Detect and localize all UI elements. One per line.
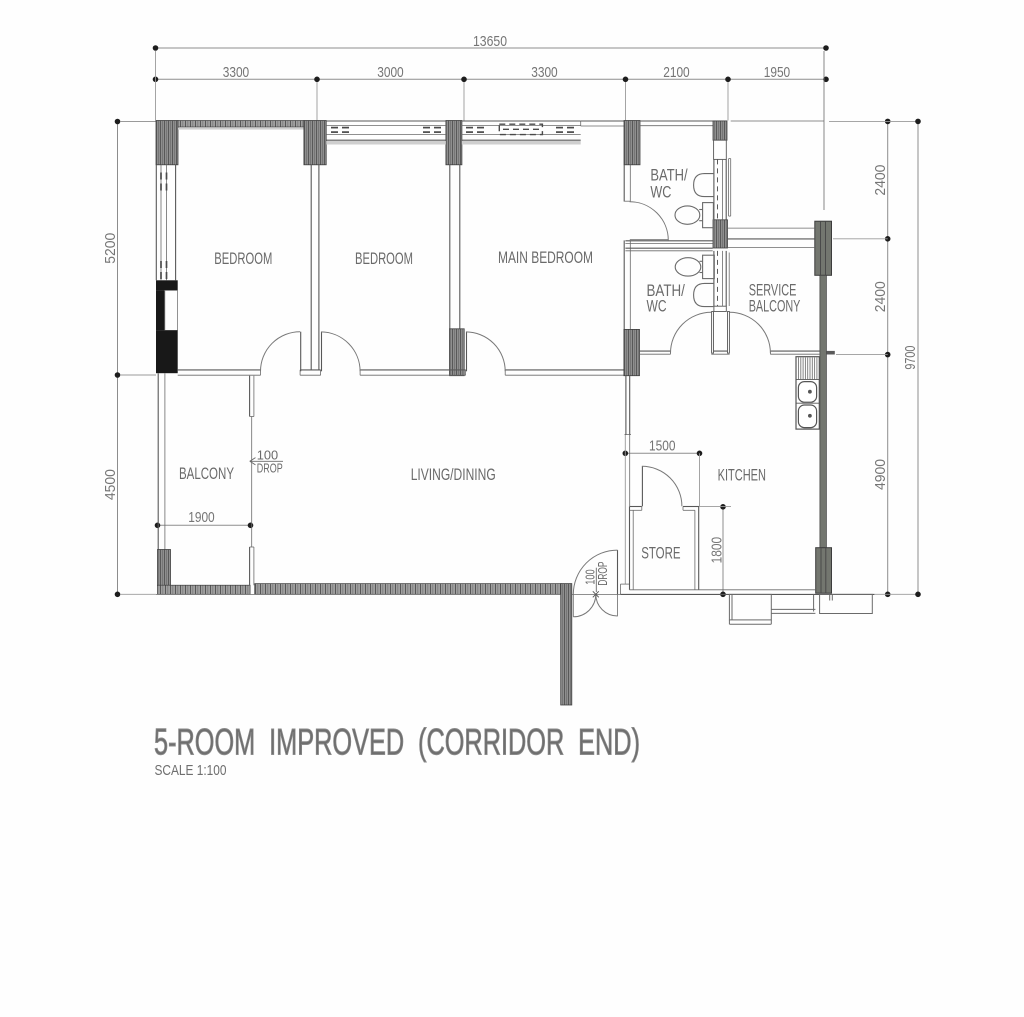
svg-text:3000: 3000 — [377, 64, 404, 81]
svg-text:1800: 1800 — [708, 537, 725, 564]
svg-text:DROP: DROP — [257, 462, 283, 476]
svg-text:WC: WC — [650, 183, 671, 202]
svg-text:WC: WC — [647, 297, 667, 316]
svg-text:4900: 4900 — [872, 459, 889, 490]
svg-text:1950: 1950 — [764, 64, 791, 81]
svg-text:1900: 1900 — [188, 509, 215, 526]
svg-text:STORE: STORE — [641, 544, 680, 563]
svg-text:BALCONY: BALCONY — [749, 297, 801, 316]
svg-text:KITCHEN: KITCHEN — [718, 466, 766, 485]
svg-text:2400: 2400 — [872, 281, 889, 312]
svg-text:BEDROOM: BEDROOM — [355, 249, 413, 268]
svg-text:DROP: DROP — [596, 562, 610, 586]
svg-text:13650: 13650 — [473, 33, 507, 50]
svg-text:LIVING/DINING: LIVING/DINING — [411, 465, 496, 484]
svg-text:4500: 4500 — [102, 469, 119, 500]
svg-text:BALCONY: BALCONY — [179, 464, 234, 483]
svg-text:BEDROOM: BEDROOM — [214, 249, 272, 268]
svg-text:1500: 1500 — [649, 438, 676, 455]
svg-text:3300: 3300 — [223, 64, 250, 81]
svg-text:100: 100 — [257, 448, 278, 462]
svg-text:BATH/: BATH/ — [650, 165, 687, 184]
svg-text:5200: 5200 — [102, 233, 119, 264]
svg-text:5-ROOM IMPROVED (CORRIDOR END): 5-ROOM IMPROVED (CORRIDOR END) — [154, 722, 640, 763]
svg-text:SCALE 1:100: SCALE 1:100 — [155, 762, 227, 779]
svg-text:3300: 3300 — [531, 64, 558, 81]
svg-text:2100: 2100 — [663, 64, 690, 81]
svg-text:MAIN BEDROOM: MAIN BEDROOM — [498, 248, 593, 267]
svg-text:2400: 2400 — [872, 165, 889, 196]
svg-text:9700: 9700 — [902, 346, 919, 370]
